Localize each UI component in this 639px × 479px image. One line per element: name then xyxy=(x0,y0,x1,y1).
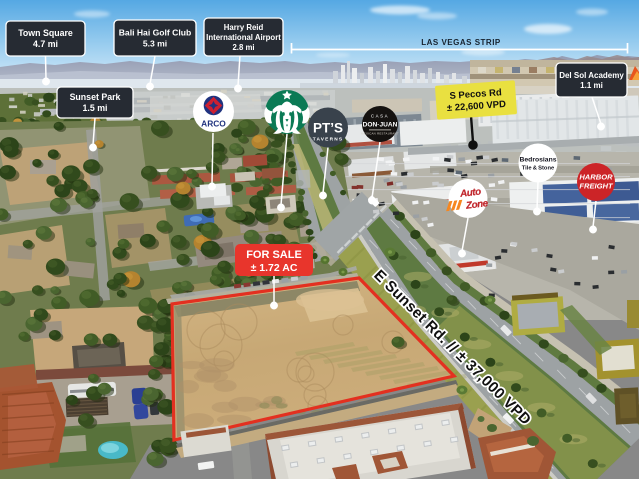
svg-text:International Airport: International Airport xyxy=(206,33,281,42)
svg-text:± 1.72 AC: ± 1.72 AC xyxy=(251,262,298,274)
svg-text:FREIGHT: FREIGHT xyxy=(579,182,614,191)
svg-text:Del Sol Academy: Del Sol Academy xyxy=(559,71,624,80)
svg-text:5.3 mi: 5.3 mi xyxy=(143,39,167,49)
svg-text:Sunset Park: Sunset Park xyxy=(70,92,121,102)
svg-text:ARCO: ARCO xyxy=(201,119,226,129)
svg-text:1.1 mi: 1.1 mi xyxy=(580,81,603,90)
svg-text:FOR SALE: FOR SALE xyxy=(246,249,302,261)
svg-text:Bedrosians: Bedrosians xyxy=(519,157,556,164)
svg-text:MEXICAN RESTAURANT: MEXICAN RESTAURANT xyxy=(361,132,399,136)
svg-text:CASA: CASA xyxy=(371,114,389,119)
svg-text:PT’S: PT’S xyxy=(313,121,343,136)
svg-text:Harry Reid: Harry Reid xyxy=(224,23,264,32)
svg-text:Tile & Stone: Tile & Stone xyxy=(522,166,555,172)
svg-text:DON·JUAN: DON·JUAN xyxy=(363,122,398,129)
svg-text:Bali Hai Golf Club: Bali Hai Golf Club xyxy=(119,28,192,38)
svg-text:TAVERNS: TAVERNS xyxy=(313,137,344,143)
svg-text:1.5 mi: 1.5 mi xyxy=(83,103,108,113)
svg-text:HARBOR: HARBOR xyxy=(579,173,613,182)
svg-text:Town Square: Town Square xyxy=(18,28,73,38)
svg-text:4.7 mi: 4.7 mi xyxy=(33,39,58,49)
svg-text:2.8 mi: 2.8 mi xyxy=(232,43,254,52)
svg-text:LAS VEGAS STRIP: LAS VEGAS STRIP xyxy=(421,38,501,47)
